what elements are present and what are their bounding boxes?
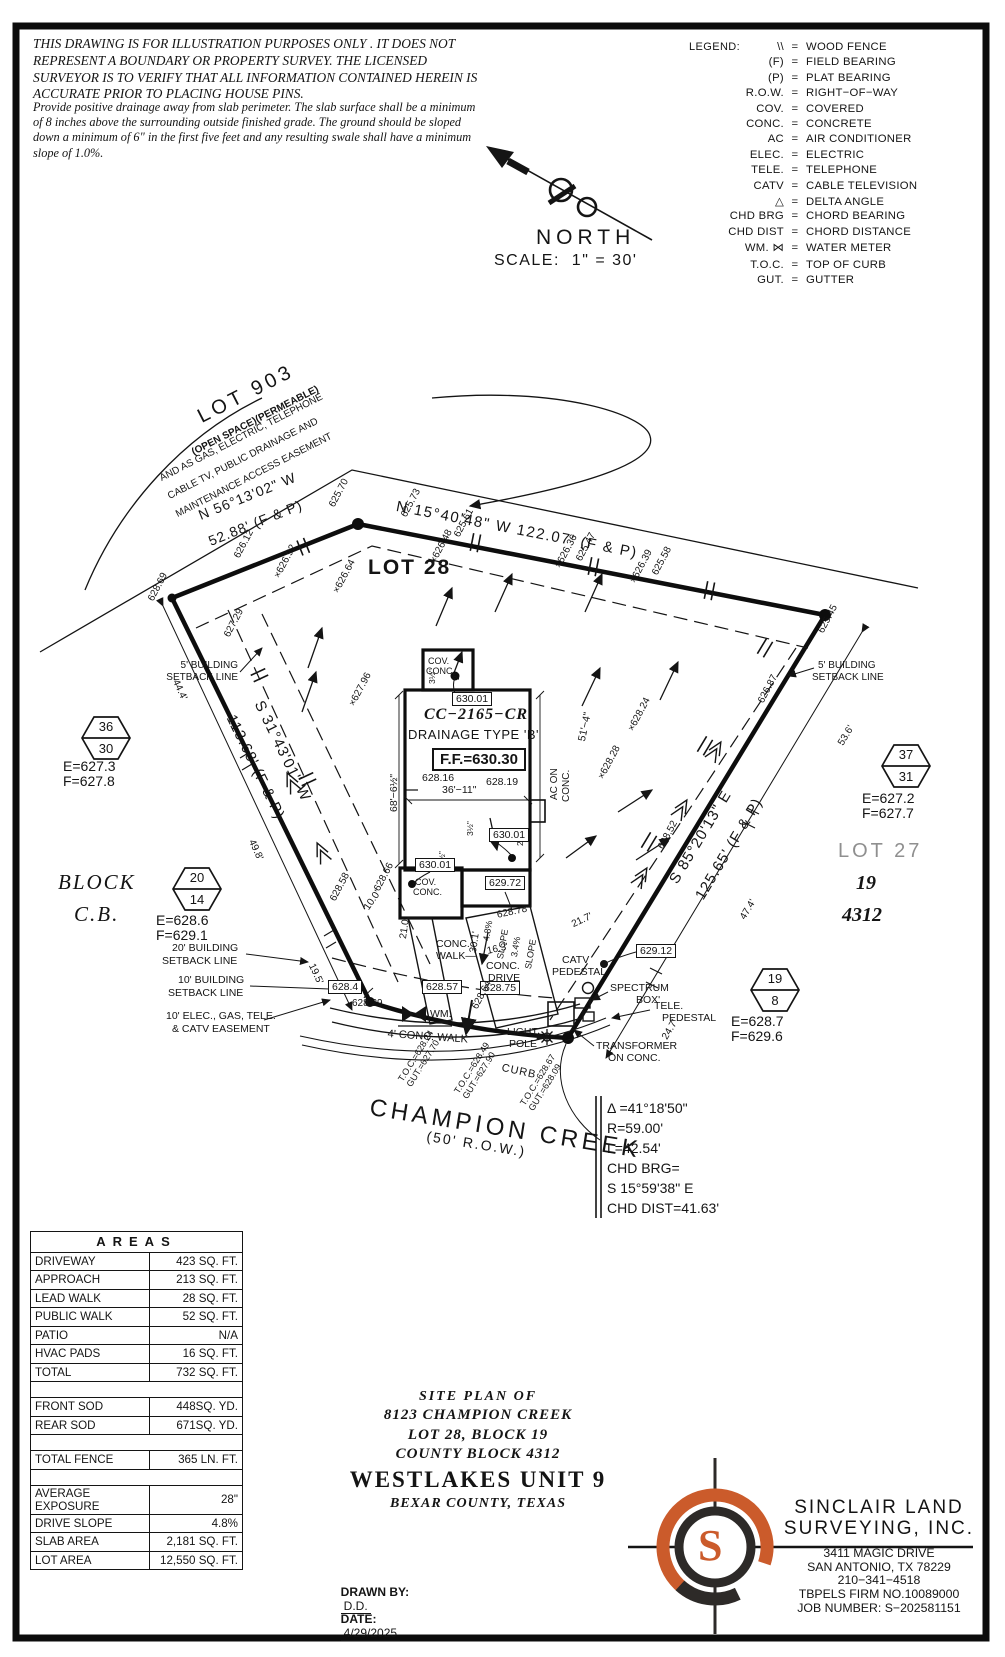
setback10-line2: SETBACK LINE (168, 987, 243, 999)
finished-floor-elevation: F.F.=630.30 (432, 748, 526, 771)
hex19-bottom: 8 (761, 994, 789, 1009)
lot27-block-number: 19 (856, 872, 876, 895)
tele-pedestal-1: TELE. (654, 1000, 683, 1012)
table-spacer (31, 1469, 243, 1485)
lot27-county-block: 4312 (842, 904, 882, 927)
conc-walk-2: WALK— (436, 950, 476, 962)
table-row: FRONT SOD448SQ. YD. (31, 1398, 243, 1417)
spot-elev: 628.29 (352, 998, 383, 1010)
elev-628-57: 628.57 (422, 980, 462, 994)
catv-pedestal-icon (583, 983, 594, 994)
cov-conc-bottom-2: CONC. (413, 887, 442, 897)
boundary-tick-marks (251, 533, 773, 851)
transformer-pad-icon (548, 1002, 574, 1026)
table-row: LEAD WALK28 SQ. FT. (31, 1289, 243, 1308)
conc-drive-2: DRIVE (488, 972, 520, 984)
lot27-label: LOT 27 (838, 840, 922, 863)
surveyor-name-2: SURVEYING, INC. (770, 1519, 988, 1540)
curve-chord-bearing: S 15°59'38" E (607, 1180, 693, 1196)
title-line-3: LOT 28, BLOCK 19 (328, 1426, 628, 1446)
hex19-f: F=629.6 (731, 1028, 783, 1044)
hex36-bottom: 30 (92, 742, 120, 757)
pad-elev-628-19: 628.19 (486, 776, 518, 788)
setback5-right-line2: SETBACK LINE (812, 672, 884, 684)
title-line-2: 8123 CHAMPION CREEK (328, 1406, 628, 1426)
table-row: PATION/A (31, 1326, 243, 1345)
table-row: AVERAGE EXPOSURE28" (31, 1485, 243, 1514)
north-label: NORTH (536, 226, 635, 250)
dim-house-depth: 68'−6½" (388, 774, 400, 812)
logo-letter: S (698, 1524, 722, 1568)
curve-delta: Δ =41°18'50" (607, 1100, 688, 1116)
drawn-by-row: DRAWN BY: D.D. DATE: 4/29/2025 (334, 1572, 409, 1641)
cov-conc-bottom-1: COV. (415, 877, 436, 887)
elev-630-01-c: 630.01 (415, 858, 455, 872)
hex20-top: 20 (183, 871, 211, 886)
conc-walk-1: CONC. (436, 938, 470, 950)
hex19-e: E=628.7 (731, 1013, 784, 1029)
house-model: CC−2165−CR (424, 706, 528, 724)
table-row: SLAB AREA2,181 SQ. FT. (31, 1533, 243, 1552)
areas-header: AREAS (31, 1232, 243, 1253)
surveyor-address-1: 3411 MAGIC DRIVE (770, 1547, 988, 1561)
surveyor-name-1: SINCLAIR LAND (770, 1498, 988, 1519)
table-row: TOTAL FENCE365 LN. FT. (31, 1451, 243, 1470)
hex36-top: 36 (92, 720, 120, 735)
table-row: HVAC PADS16 SQ. FT. (31, 1345, 243, 1364)
table-spacer (31, 1435, 243, 1451)
table-row: DRIVE SLOPE4.8% (31, 1514, 243, 1533)
table-row: PUBLIC WALK52 SQ. FT. (31, 1308, 243, 1327)
ac-on-conc-1: AC ON (549, 768, 561, 800)
conc-drive-1: CONC. (486, 960, 520, 972)
light-pole-1: LIGHT (507, 1026, 538, 1038)
light-pole-icon (539, 1029, 555, 1045)
elev-629-72: 629.72 (485, 876, 525, 890)
tick-3half-mid: 3½" (466, 821, 476, 836)
surveyor-block: SINCLAIR LAND SURVEYING, INC. 3411 MAGIC… (770, 1498, 988, 1616)
easement10-line2: & CATV EASEMENT (172, 1023, 270, 1035)
elev-630-01-a: 630.01 (452, 692, 492, 706)
table-row: TOTAL732 SQ. FT. (31, 1363, 243, 1382)
setback5-left-line2: SETBACK LINE (144, 672, 238, 684)
tick-3half-porch: 3½" (428, 669, 438, 684)
wm-label: WM. (430, 1008, 452, 1020)
drawn-by-label: DRAWN BY: (341, 1585, 409, 1599)
elev-630-01-b: 630.01 (489, 828, 529, 842)
water-meter-legend-symbol: WM. ⋈ (700, 241, 784, 254)
catv-pedestal-2: PEDESTAL (552, 966, 606, 978)
hex37-bottom: 31 (892, 770, 920, 785)
block-label: BLOCK (58, 870, 136, 894)
spectrum-box-1: SPECTRUM (610, 982, 669, 994)
drainage-type: DRAINAGE TYPE 'B' (408, 728, 539, 743)
catv-pedestal-1: CATV (562, 954, 589, 966)
date-value: 4/29/2025 (341, 1626, 400, 1641)
title-line-1: SITE PLAN OF (328, 1388, 628, 1406)
title-line-4: COUNTY BLOCK 4312 (328, 1445, 628, 1465)
scale-label: SCALE: 1" = 30' (494, 252, 637, 270)
transformer-1: TRANSFORMER (596, 1040, 677, 1052)
delta-angle-symbol: △ (700, 195, 784, 208)
table-row: APPROACH213 SQ. FT. (31, 1271, 243, 1290)
hex20-bottom: 14 (183, 893, 211, 908)
hex37-e: E=627.2 (862, 790, 915, 806)
surveyor-phone: 210−341−4518 (770, 1574, 988, 1588)
hex19-top: 19 (761, 972, 789, 987)
elev-629-12: 629.12 (636, 944, 676, 958)
curve-length: L=42.54' (607, 1140, 661, 1156)
light-pole-2: POLE (509, 1038, 537, 1050)
tick-2ft-porch: 2' (452, 674, 462, 680)
hex20-f: F=629.1 (156, 927, 208, 943)
setback10-line1: 10' BUILDING (178, 974, 244, 986)
site-plan-sheet: THIS DRAWING IS FOR ILLUSTRATION PURPOSE… (0, 0, 1005, 1657)
setback5-right-line1: 5' BUILDING (818, 660, 875, 672)
table-row: DRIVEWAY423 SQ. FT. (31, 1252, 243, 1271)
hex20-e: E=628.6 (156, 912, 209, 928)
date-label: DATE: (341, 1612, 377, 1626)
curve-chord-brg-label: CHD BRG= (607, 1160, 680, 1176)
hex37-f: F=627.7 (862, 805, 914, 821)
setback20-line2: SETBACK LINE (162, 955, 237, 967)
transformer-2: ON CONC. (608, 1052, 661, 1064)
hex36-e: E=627.3 (63, 758, 116, 774)
hex37-top: 37 (892, 748, 920, 763)
areas-table: AREAS DRIVEWAY423 SQ. FT. APPROACH213 SQ… (30, 1231, 243, 1570)
drainage-note: Provide positive drainage away from slab… (33, 100, 481, 161)
tele-pedestal-2: PEDESTAL (662, 1012, 716, 1024)
elev-628-4: 628.4 (328, 980, 362, 994)
curve-radius: R=59.00' (607, 1120, 663, 1136)
cov-conc-top-1: COV. (428, 656, 449, 666)
wood-fence-symbol: \\ (700, 41, 784, 53)
block-cb-label: C.B. (74, 902, 119, 926)
table-spacer (31, 1382, 243, 1398)
table-row: LOT AREA12,550 SQ. FT. (31, 1551, 243, 1570)
dim-house-width: 36'−11" (442, 784, 476, 796)
easement10-line1: 10' ELEC., GAS, TELE. (166, 1010, 276, 1022)
legend: \\=WOOD FENCE (F)=FIELD BEARING (P)=PLAT… (700, 41, 960, 290)
surveyor-address-2: SAN ANTONIO, TX 78229 (770, 1561, 988, 1575)
ac-on-conc-2: CONC. (561, 770, 573, 802)
surveyor-firm-number: TBPELS FIRM NO.10089000 (770, 1588, 988, 1602)
curve-chord-distance: CHD DIST=41.63' (607, 1200, 719, 1216)
table-row: REAR SOD671SQ. YD. (31, 1416, 243, 1435)
disclaimer-text: THIS DRAWING IS FOR ILLUSTRATION PURPOSE… (33, 36, 481, 103)
surveyor-job-number: JOB NUMBER: S−202581151 (770, 1602, 988, 1616)
drawn-by-value: D.D. (341, 1599, 371, 1614)
title-line-5: WESTLAKES UNIT 9 (328, 1465, 628, 1495)
setback20-line1: 20' BUILDING (172, 942, 238, 954)
title-block: SITE PLAN OF 8123 CHAMPION CREEK LOT 28,… (328, 1388, 628, 1513)
pad-elev-628-16: 628.16 (422, 772, 454, 784)
hex36-f: F=627.8 (63, 773, 115, 789)
driveway-and-walks (330, 906, 582, 1037)
title-line-6: BEXAR COUNTY, TEXAS (328, 1495, 628, 1513)
setback5-left-line1: 5' BUILDING (152, 660, 238, 672)
